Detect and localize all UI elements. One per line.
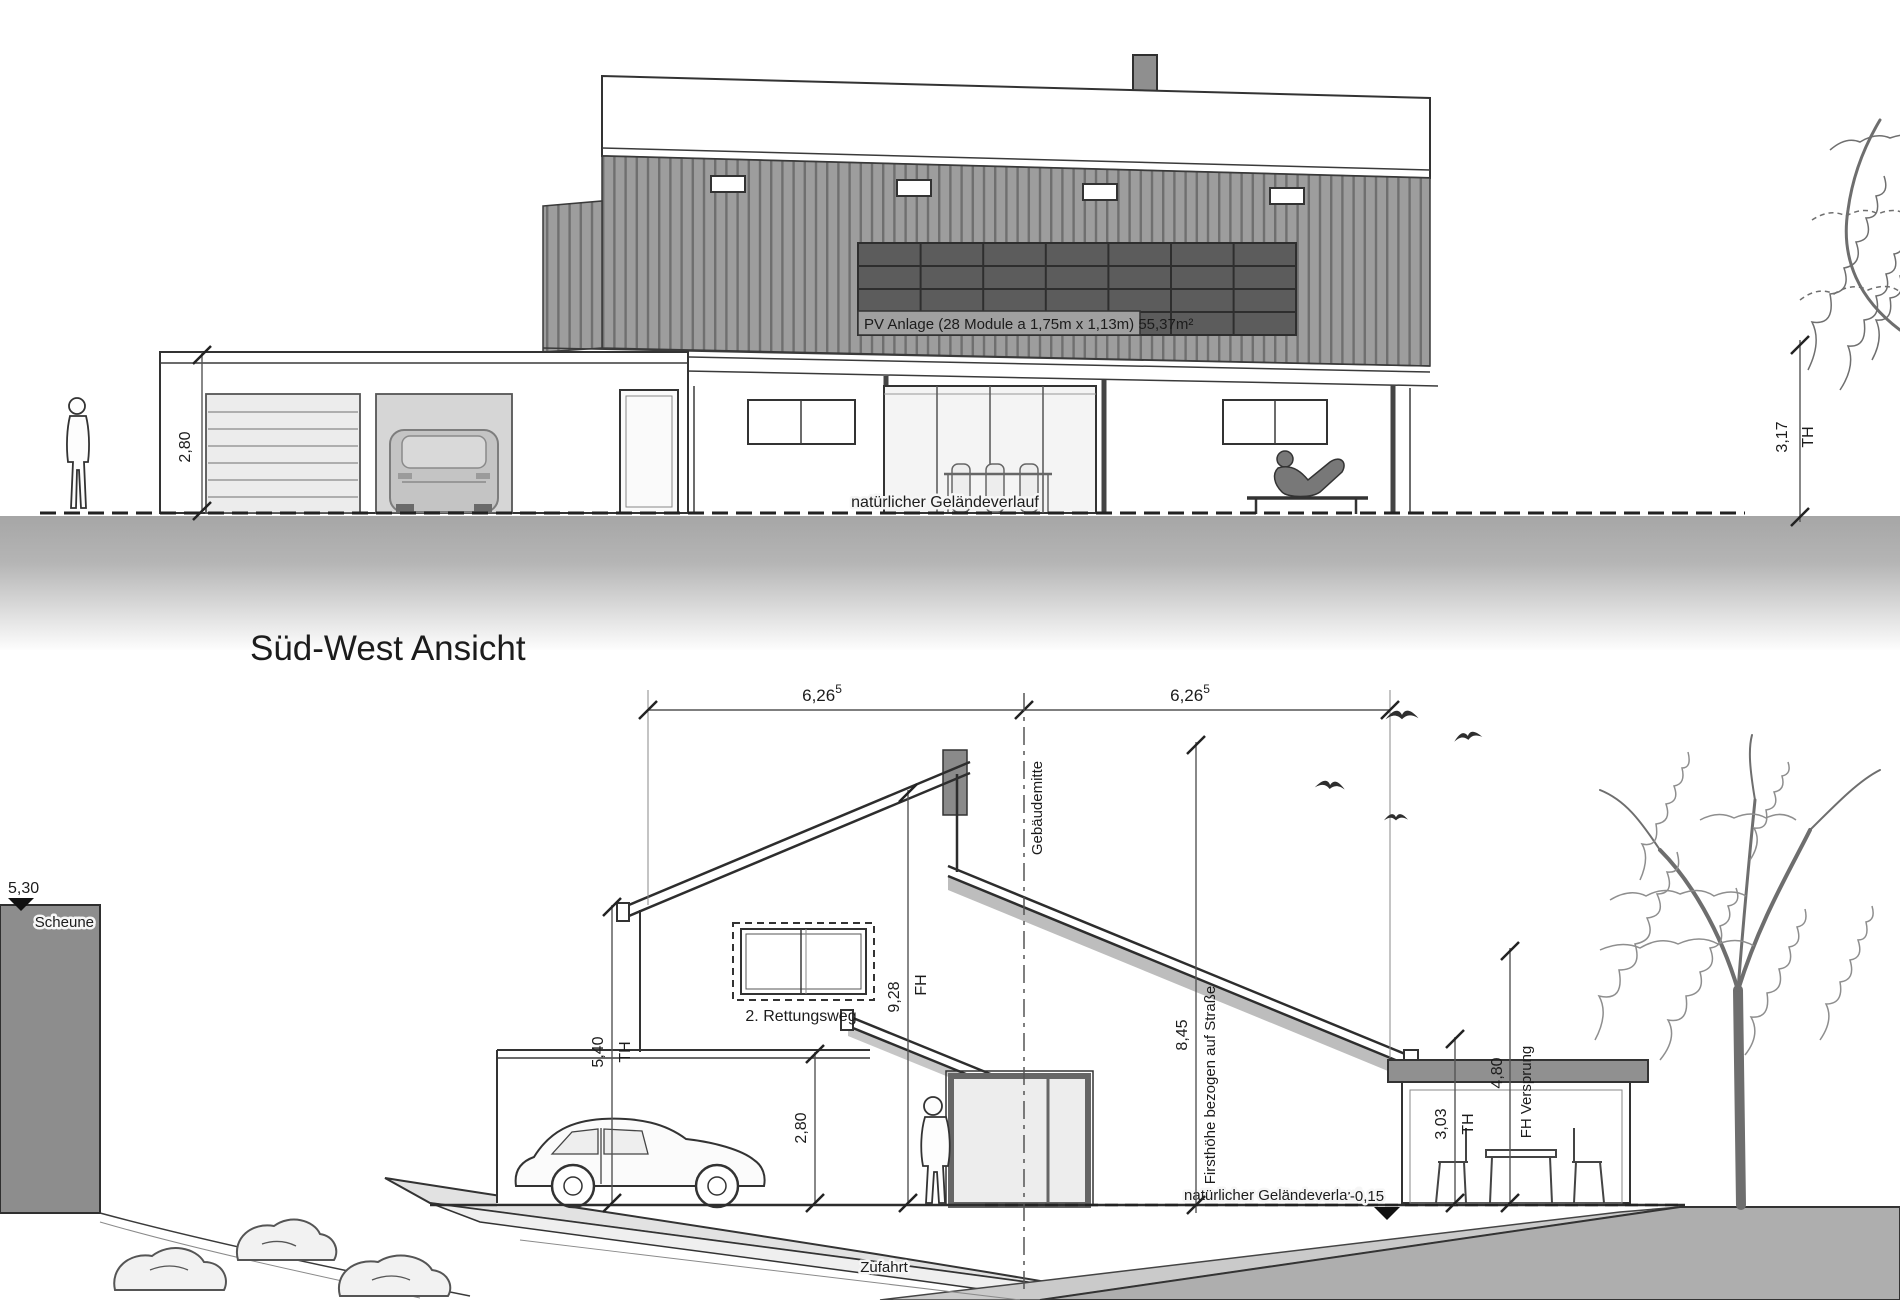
timber-cladding-left-step [543, 201, 602, 352]
ground-level-marker [1374, 1207, 1400, 1220]
rocks [114, 1220, 450, 1296]
svg-text:3,03: 3,03 [1433, 1108, 1450, 1139]
garage-wing [160, 352, 688, 513]
svg-text:FH: FH [913, 974, 930, 995]
dim-span-left: 6,265 [802, 682, 842, 705]
pv-label: PV Anlage (28 Module a 1,75m x 1,13m) 55… [864, 316, 1193, 333]
svg-text:9,28: 9,28 [886, 981, 903, 1012]
svg-text:TH: TH [617, 1041, 634, 1062]
svg-text:2,80: 2,80 [793, 1112, 810, 1143]
ground-offset-text: -0,15 [1350, 1188, 1384, 1205]
birds [1315, 711, 1483, 821]
top-elevation-sued-west: PV Anlage (28 Module a 1,75m x 1,13m) 55… [0, 55, 1900, 668]
tree-top-right [1800, 120, 1900, 390]
barn: Scheune 5,30 [0, 880, 100, 1213]
window-left [748, 400, 855, 444]
svg-text:Firsthöhe bezogen auf Straße: Firsthöhe bezogen auf Straße [1202, 986, 1219, 1184]
rescue-window-label: 2. Rettungsweg [745, 1008, 856, 1025]
barn-label: Scheune [35, 914, 94, 931]
driveway-label: Zufahrt [860, 1259, 908, 1276]
svg-text:2,80: 2,80 [177, 431, 194, 462]
svg-text:8,45: 8,45 [1174, 1019, 1191, 1050]
person-lounging [1247, 451, 1368, 514]
svg-text:3,17: 3,17 [1774, 421, 1791, 452]
svg-text:Gebäudemitte: Gebäudemitte [1029, 761, 1046, 855]
entrance-door-section [946, 1071, 1093, 1205]
barn-level-text: 5,30 [8, 880, 39, 897]
car-rear-view [390, 430, 498, 512]
svg-text:5,40: 5,40 [590, 1036, 607, 1067]
window-right [1223, 400, 1327, 444]
elevation-drawings-canvas: PV Anlage (28 Module a 1,75m x 1,13m) 55… [0, 0, 1900, 1300]
person-standing-left [67, 398, 89, 508]
architectural-drawing-sheet: PV Anlage (28 Module a 1,75m x 1,13m) 55… [0, 0, 1900, 1300]
rescue-window [733, 923, 874, 1000]
bottom-section-view: Scheune 5,30 [0, 682, 1900, 1300]
entrance-door [620, 390, 678, 513]
dim-span-right: 6,265 [1170, 682, 1210, 705]
svg-text:4,80: 4,80 [1489, 1057, 1506, 1088]
section-title: Süd-West Ansicht [250, 629, 526, 668]
tree-bottom-right [1595, 735, 1880, 1205]
ground-label-bottom: natürlicher Geländeverlauf [1184, 1187, 1361, 1204]
svg-text:TH: TH [1800, 426, 1817, 447]
svg-text:TH: TH [1460, 1113, 1477, 1134]
ground-label-top: natürlicher Geländeverlauf [851, 494, 1039, 511]
svg-text:FH Versprung: FH Versprung [1518, 1046, 1535, 1139]
